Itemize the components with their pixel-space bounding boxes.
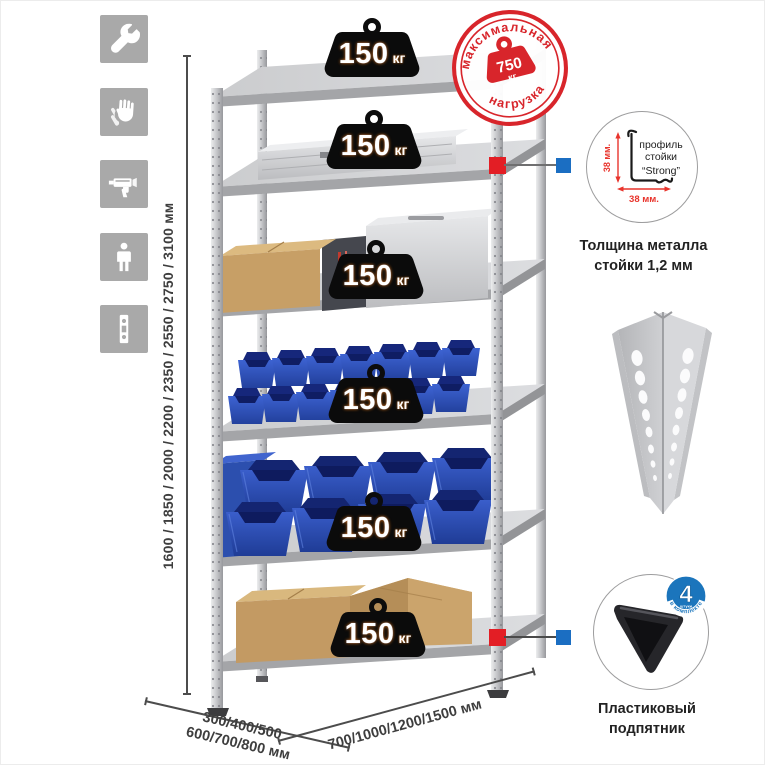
profile-label-3: “Strong” bbox=[642, 165, 680, 177]
connector-line-top bbox=[504, 164, 558, 166]
post-profile-detail-circle: 38 мм. 38 мм. профиль стойки “Strong” bbox=[586, 111, 698, 223]
vertical-dim-arrow bbox=[615, 132, 620, 183]
foot-caption-line2: подпятник bbox=[567, 720, 727, 740]
gloves-tile bbox=[100, 88, 148, 136]
shelf-load-value: 150 bbox=[343, 260, 393, 293]
wrench-icon bbox=[107, 22, 141, 56]
horizontal-dim-arrow bbox=[617, 186, 671, 191]
shelf-load-value: 150 bbox=[343, 384, 393, 417]
shelf-load-unit: кг bbox=[397, 272, 410, 288]
weight-badge: 150кг bbox=[314, 240, 438, 302]
foot-caption-line1: Пластиковый bbox=[567, 700, 727, 720]
drill-icon bbox=[107, 167, 141, 201]
person-icon bbox=[107, 240, 141, 274]
weight-badge: 150кг bbox=[312, 492, 436, 554]
profile-label-1: профиль bbox=[639, 139, 683, 151]
weight-badge: 150кг bbox=[314, 364, 438, 426]
profile-caption: Толщина металла стойки 1,2 мм bbox=[561, 237, 726, 276]
connector-line-bottom bbox=[504, 636, 558, 638]
profile-caption-line1: Толщина металла bbox=[561, 237, 726, 257]
profile-horizontal-dim: 38 мм. bbox=[629, 194, 659, 205]
detail-marker-blue-top bbox=[556, 158, 571, 173]
assembly-tools-tile bbox=[100, 15, 148, 63]
rack-profile-icon bbox=[107, 312, 141, 346]
corner-foot-detail-circle: 4 штуки в комплекте bbox=[593, 574, 709, 690]
height-dimension-label: 1600 / 1850 / 2000 / 2200 / 2350 / 2550 … bbox=[160, 66, 180, 706]
profile-label-2: стойки bbox=[645, 151, 677, 163]
shelf-load-value: 150 bbox=[341, 130, 391, 163]
shelf-load-unit: кг bbox=[399, 630, 412, 646]
person-tile bbox=[100, 233, 148, 281]
weight-badge: 150кг bbox=[312, 110, 436, 172]
drill-tile bbox=[100, 160, 148, 208]
height-dimension-line bbox=[186, 55, 188, 695]
plastic-corner-foot-image bbox=[614, 605, 683, 673]
shelf-load-value: 150 bbox=[339, 38, 389, 71]
weight-badge: 150кг bbox=[310, 18, 434, 80]
profile-caption-line2: стойки 1,2 мм bbox=[561, 257, 726, 277]
shelf-load-value: 150 bbox=[345, 618, 395, 651]
shelf-load-value: 150 bbox=[341, 512, 391, 545]
badge-small-text: штуки bbox=[680, 604, 693, 609]
shelf-load-unit: кг bbox=[393, 50, 406, 66]
shelf-load-unit: кг bbox=[395, 142, 408, 158]
foot-caption: Пластиковый подпятник bbox=[567, 700, 727, 739]
weight-badge: 150кг bbox=[316, 598, 440, 660]
gloves-icon bbox=[107, 95, 141, 129]
shelf-load-unit: кг bbox=[397, 396, 410, 412]
quantity-badge: 4 штуки в комплекте bbox=[666, 576, 706, 616]
profile-vertical-dim: 38 мм. bbox=[602, 144, 612, 172]
shelf-load-unit: кг bbox=[395, 524, 408, 540]
angle-profile-image bbox=[588, 300, 738, 525]
rack-profile-tile bbox=[100, 305, 148, 353]
detail-marker-blue-bottom bbox=[556, 630, 571, 645]
